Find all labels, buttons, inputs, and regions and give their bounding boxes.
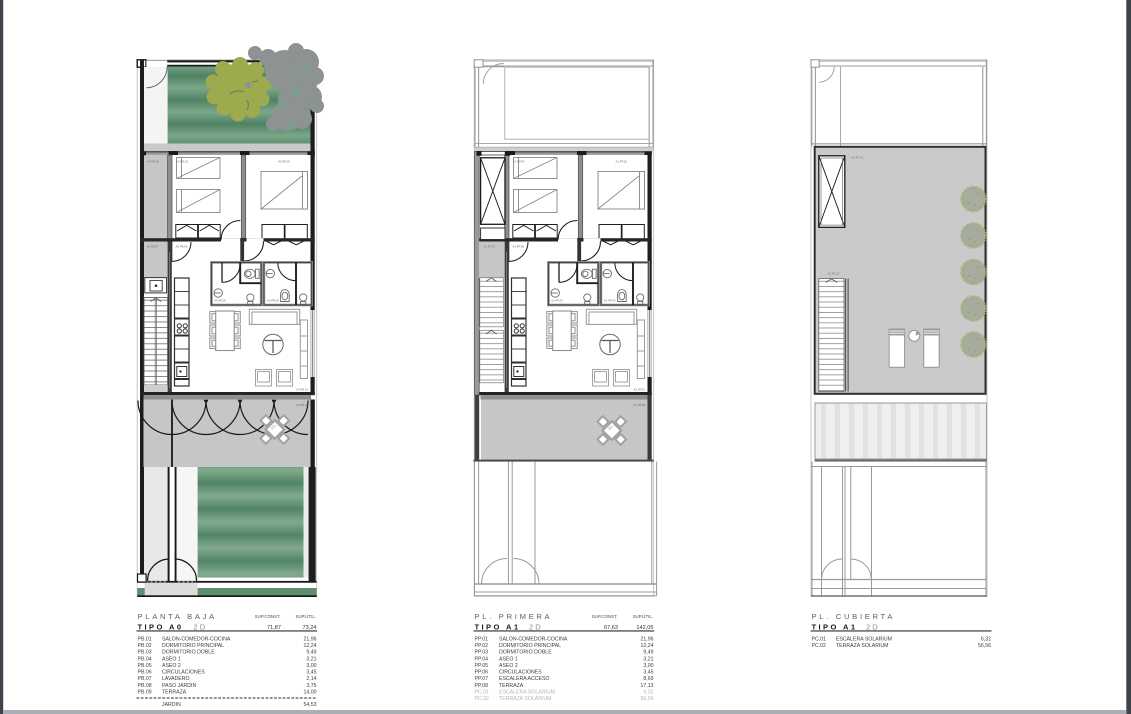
svg-text:A0 PB.07: A0 PB.07: [147, 245, 159, 249]
svg-text:PC.02: PC.02: [475, 696, 490, 702]
svg-text:A0 PB.03: A0 PB.03: [176, 160, 188, 164]
svg-text:3,21: 3,21: [643, 656, 653, 662]
svg-text:TIPO A1: TIPO A1: [475, 623, 521, 632]
svg-text:PB.05: PB.05: [138, 663, 152, 669]
svg-text:PP.07: PP.07: [475, 676, 489, 682]
svg-text:A1 PP.05: A1 PP.05: [551, 299, 563, 303]
svg-text:3,21: 3,21: [306, 656, 316, 662]
svg-text:3,75: 3,75: [306, 683, 316, 689]
svg-text:A0 PB.08: A0 PB.08: [147, 160, 159, 164]
svg-text:2D: 2D: [866, 623, 880, 632]
svg-text:A0 PB.09: A0 PB.09: [296, 403, 308, 407]
svg-text:TERRAZA: TERRAZA: [499, 683, 524, 689]
svg-text:DORMITORIO DOBLE: DORMITORIO DOBLE: [499, 650, 552, 656]
svg-text:PP.05: PP.05: [475, 663, 489, 669]
svg-text:SUP.ÚTIL.: SUP.ÚTIL.: [296, 614, 316, 619]
svg-text:71,87: 71,87: [267, 625, 281, 631]
svg-text:54,53: 54,53: [304, 702, 317, 708]
svg-text:PP.01: PP.01: [475, 636, 489, 642]
svg-text:PB.06: PB.06: [138, 670, 152, 676]
svg-text:PP.04: PP.04: [475, 656, 489, 662]
svg-text:ASEO 1: ASEO 1: [162, 656, 181, 662]
svg-text:PB.09: PB.09: [138, 690, 152, 696]
svg-text:TIPO A1: TIPO A1: [812, 623, 858, 632]
svg-text:ESCALERA SOLARIUM: ESCALERA SOLARIUM: [836, 636, 892, 642]
svg-text:A1 PP.07: A1 PP.07: [484, 245, 496, 249]
svg-text:67,63: 67,63: [604, 625, 618, 631]
svg-text:PP.02: PP.02: [475, 643, 489, 649]
svg-text:TIPO A0: TIPO A0: [138, 623, 184, 632]
svg-text:3,00: 3,00: [306, 663, 316, 669]
svg-text:12,24: 12,24: [304, 643, 317, 649]
svg-text:LAVADERO: LAVADERO: [162, 676, 189, 682]
svg-text:6,32: 6,32: [981, 636, 991, 642]
svg-text:A0 PB.02: A0 PB.02: [278, 160, 290, 164]
svg-text:A0 PB.01: A0 PB.01: [296, 388, 308, 392]
svg-text:A1 PP.01: A1 PP.01: [634, 388, 646, 392]
svg-text:TERRAZA SOLARIUM: TERRAZA SOLARIUM: [836, 643, 888, 649]
svg-text:SUP.CONST.: SUP.CONST.: [255, 614, 281, 619]
svg-text:CIRCULACIONES: CIRCULACIONES: [499, 670, 542, 676]
svg-text:PC.01: PC.01: [812, 636, 827, 642]
svg-text:SALON-COMEDOR-COCINA: SALON-COMEDOR-COCINA: [162, 636, 231, 642]
svg-text:3,45: 3,45: [643, 670, 653, 676]
svg-text:PC.01: PC.01: [475, 690, 490, 696]
svg-text:A1 PP.03: A1 PP.03: [513, 160, 525, 164]
svg-text:PB.07: PB.07: [138, 676, 152, 682]
svg-text:PB.08: PB.08: [138, 683, 152, 689]
svg-text:21,96: 21,96: [641, 636, 654, 642]
svg-text:A1 PC.01: A1 PC.01: [828, 272, 840, 276]
svg-text:DORMITORIO PRINCIPAL: DORMITORIO PRINCIPAL: [499, 643, 561, 649]
svg-text:SUP.CONST.: SUP.CONST.: [592, 614, 618, 619]
svg-text:A1 PP.08: A1 PP.08: [634, 403, 646, 407]
svg-text:A1 PP.04: A1 PP.04: [604, 299, 616, 303]
svg-text:73,24: 73,24: [303, 625, 317, 631]
svg-text:14,00: 14,00: [304, 690, 317, 696]
svg-text:21,96: 21,96: [304, 636, 317, 642]
svg-text:9,49: 9,49: [643, 650, 653, 656]
svg-text:SALON-COMEDOR-COCINA: SALON-COMEDOR-COCINA: [499, 636, 568, 642]
svg-text:3,45: 3,45: [306, 670, 316, 676]
svg-text:PL. CUBIERTA: PL. CUBIERTA: [812, 612, 896, 621]
svg-text:2D: 2D: [194, 623, 208, 632]
svg-text:17,13: 17,13: [641, 683, 654, 689]
svg-text:TERRAZA: TERRAZA: [162, 690, 187, 696]
svg-text:9,49: 9,49: [306, 650, 316, 656]
svg-text:PL. PRIMERA: PL. PRIMERA: [475, 612, 553, 621]
svg-text:PB.03: PB.03: [138, 650, 152, 656]
svg-text:PB.01: PB.01: [138, 636, 152, 642]
svg-text:JARDIN: JARDIN: [162, 702, 181, 708]
svg-text:56,56: 56,56: [641, 696, 654, 702]
svg-text:SUP.ÚTIL.: SUP.ÚTIL.: [633, 614, 653, 619]
svg-text:56,56: 56,56: [978, 643, 991, 649]
svg-text:PB.04: PB.04: [138, 656, 152, 662]
svg-text:3,00: 3,00: [643, 663, 653, 669]
svg-text:A1 PC.02: A1 PC.02: [852, 156, 864, 160]
svg-text:A0 PB.05: A0 PB.05: [214, 299, 226, 303]
svg-text:DORMITORIO DOBLE: DORMITORIO DOBLE: [162, 650, 215, 656]
svg-text:ASEO 2: ASEO 2: [162, 663, 181, 669]
svg-text:PB.02: PB.02: [138, 643, 152, 649]
svg-text:A0 PB.04: A0 PB.04: [267, 299, 279, 303]
svg-text:CIRCULACIONES: CIRCULACIONES: [162, 670, 205, 676]
svg-text:A1 PP.06: A1 PP.06: [513, 245, 525, 249]
svg-text:12,24: 12,24: [641, 643, 654, 649]
svg-text:6,32: 6,32: [643, 690, 653, 696]
svg-text:ASEO 1: ASEO 1: [499, 656, 518, 662]
svg-text:ESCALERA SOLARIUM: ESCALERA SOLARIUM: [499, 690, 555, 696]
svg-text:DORMITORIO PRINCIPAL: DORMITORIO PRINCIPAL: [162, 643, 224, 649]
svg-text:PASO JARDIN: PASO JARDIN: [162, 683, 196, 689]
svg-text:PP.08: PP.08: [475, 683, 489, 689]
svg-text:142,05: 142,05: [636, 625, 653, 631]
svg-text:8,69: 8,69: [643, 676, 653, 682]
svg-text:PP.06: PP.06: [475, 670, 489, 676]
svg-text:PP.03: PP.03: [475, 650, 489, 656]
svg-text:A0 PB.06: A0 PB.06: [176, 245, 188, 249]
svg-text:2,14: 2,14: [306, 676, 316, 682]
svg-text:2D: 2D: [529, 623, 543, 632]
svg-text:ESCALERA ACCESO: ESCALERA ACCESO: [499, 676, 549, 682]
svg-text:PLANTA BAJA: PLANTA BAJA: [138, 612, 217, 621]
svg-text:TERRAZA SOLARIUM: TERRAZA SOLARIUM: [499, 696, 551, 702]
svg-text:A1 PP.02: A1 PP.02: [616, 160, 628, 164]
svg-text:ASEO 2: ASEO 2: [499, 663, 518, 669]
svg-text:PC.02: PC.02: [812, 643, 827, 649]
